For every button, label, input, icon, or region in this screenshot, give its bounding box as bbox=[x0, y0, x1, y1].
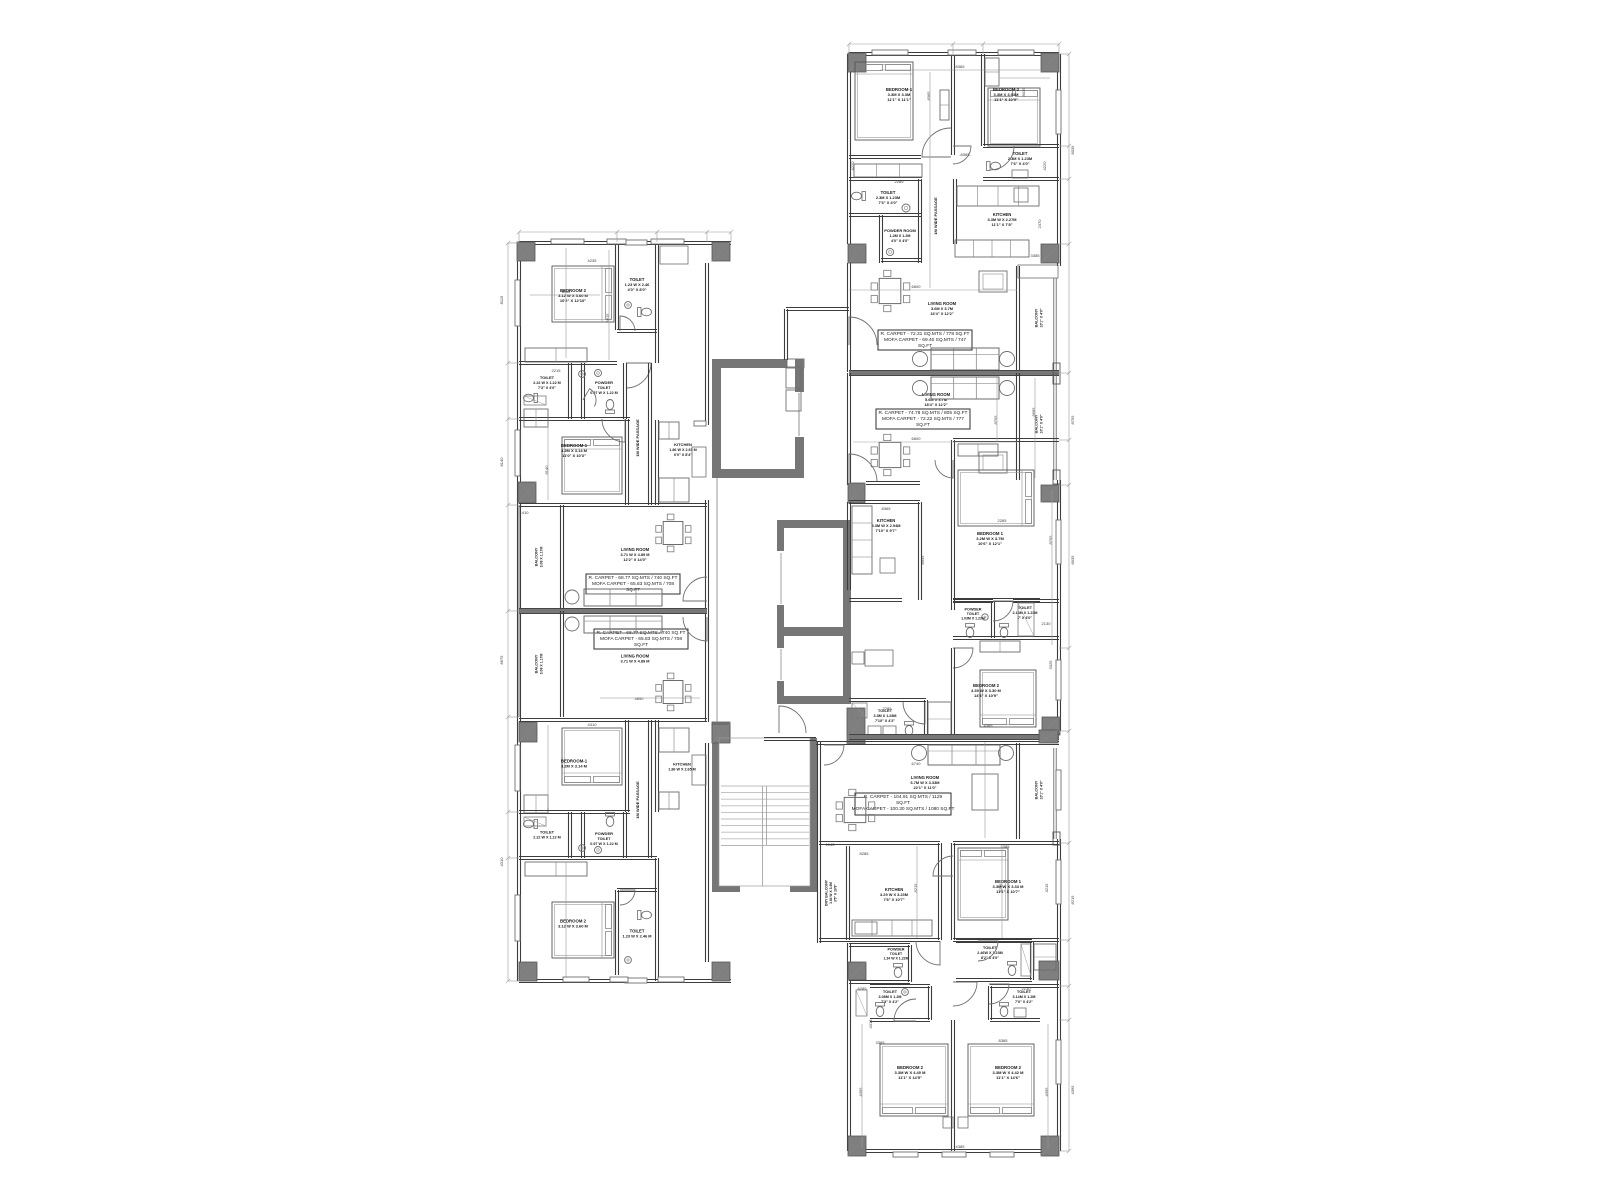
svg-text:2285: 2285 bbox=[895, 179, 905, 184]
svg-text:BEDROOM-13.2M X 3.14 M: BEDROOM-13.2M X 3.14 M bbox=[561, 758, 588, 768]
svg-text:-8365-: -8365- bbox=[959, 152, 971, 157]
svg-text:4220: 4220 bbox=[1042, 161, 1047, 171]
svg-text:8215: 8215 bbox=[1070, 895, 1075, 905]
svg-text:SQ.FT: SQ.FT bbox=[634, 642, 648, 648]
svg-text:2285: 2285 bbox=[998, 518, 1008, 523]
svg-text:3385: 3385 bbox=[1031, 253, 1041, 258]
svg-text:8935: 8935 bbox=[920, 555, 925, 565]
svg-text:R. CARPET - 72.31 SQ.MTS / 778: R. CARPET - 72.31 SQ.MTS / 778 SQ.FT bbox=[881, 331, 970, 337]
svg-text:3325: 3325 bbox=[1048, 660, 1053, 670]
svg-text:8935: 8935 bbox=[1070, 555, 1075, 565]
svg-text:BEDROOM-23.3M X 3.53M11'1" X 1: BEDROOM-23.3M X 3.53M11'1" X 10'9" bbox=[993, 87, 1020, 102]
svg-text:6600: 6600 bbox=[912, 284, 922, 289]
svg-text:BALCONY3.08 X 1.17M: BALCONY3.08 X 1.17M bbox=[535, 547, 544, 568]
svg-text:LIVING ROOM6.7M W X 3.33M22'1": LIVING ROOM6.7M W X 3.33M22'1" X 11'0" bbox=[911, 775, 940, 790]
svg-text:BEDROOM-13.3M X 3.3M11'1" X 11: BEDROOM-13.3M X 3.3M11'1" X 11'1" bbox=[886, 87, 913, 102]
svg-text:3385: 3385 bbox=[876, 1040, 886, 1045]
svg-text:BALCONY10'1" X 4'0": BALCONY10'1" X 4'0" bbox=[1035, 780, 1044, 799]
svg-text:MOFA CARPET - 65.83 SQ.MTS / 7: MOFA CARPET - 65.83 SQ.MTS / 708 bbox=[592, 581, 674, 587]
svg-text:BEDROOM 24.39 W X 3.30 M14'4": BEDROOM 24.39 W X 3.30 M14'4" X 10'9" bbox=[971, 683, 1001, 698]
svg-text:4215: 4215 bbox=[1044, 883, 1049, 893]
svg-text:4235: 4235 bbox=[588, 258, 598, 263]
svg-text:BEDROOM 13.2M W X 3.7M10'6" X: BEDROOM 13.2M W X 3.7M10'6" X 12'1" bbox=[976, 531, 1004, 546]
svg-text:4385: 4385 bbox=[984, 723, 994, 728]
svg-text:2285: 2285 bbox=[883, 706, 893, 711]
svg-text:8035: 8035 bbox=[1021, 87, 1026, 97]
svg-text:8285: 8285 bbox=[858, 986, 868, 991]
svg-text:BALCONY3.08 X 1.17M: BALCONY3.08 X 1.17M bbox=[535, 654, 544, 675]
svg-text:8115: 8115 bbox=[562, 289, 571, 294]
svg-text:8675: 8675 bbox=[499, 655, 504, 665]
svg-text:SQ.FT: SQ.FT bbox=[916, 422, 930, 428]
svg-text:2370: 2370 bbox=[1037, 219, 1042, 229]
svg-text:BEDROOM 23.3M W X 4.40 M11'1": BEDROOM 23.3M W X 4.40 M11'1" X 14'5" bbox=[895, 1065, 927, 1080]
svg-text:SQ.FT: SQ.FT bbox=[896, 800, 910, 806]
svg-text:4313: 4313 bbox=[868, 1019, 873, 1029]
svg-text:8115: 8115 bbox=[499, 295, 504, 304]
svg-text:BALCONY10'1" X 4'0": BALCONY10'1" X 4'0" bbox=[1035, 308, 1044, 327]
svg-text:8035: 8035 bbox=[1070, 145, 1075, 155]
svg-text:R. CARPET - 68.77 SQ.MTS / 740: R. CARPET - 68.77 SQ.MTS / 740 SQ.FT bbox=[589, 575, 678, 581]
svg-text:8140: 8140 bbox=[499, 457, 504, 467]
svg-text:MOFA CARPET - 72.22 SQ.MTS / 7: MOFA CARPET - 72.22 SQ.MTS / 777 bbox=[882, 416, 964, 422]
svg-text:6740: 6740 bbox=[912, 761, 922, 766]
svg-text:LIVING ROOM3.71 W X 4.89 M: LIVING ROOM3.71 W X 4.89 M bbox=[621, 654, 650, 664]
svg-text:LIVING ROOM3.6M X 3.7M16'4" X: LIVING ROOM3.6M X 3.7M16'4" X 12'2" bbox=[928, 301, 957, 316]
svg-text:R. CARPET - 74.78 SQ.MTS / 805: R. CARPET - 74.78 SQ.MTS / 805 SQ.FT bbox=[879, 410, 968, 416]
svg-text:SQ.FT: SQ.FT bbox=[918, 343, 932, 349]
svg-text:4220: 4220 bbox=[850, 161, 855, 171]
svg-text:4890: 4890 bbox=[635, 696, 645, 701]
svg-text:2130: 2130 bbox=[1022, 986, 1032, 991]
svg-text:BEDROOM-13.2M X 3.14 M11'0" X: BEDROOM-13.2M X 3.14 M11'0" X 10'3" bbox=[561, 443, 588, 458]
svg-text:LIVING ROOM3.71 W X 4.89 M12'2: LIVING ROOM3.71 W X 4.89 M12'2" X 14'0" bbox=[621, 547, 650, 562]
svg-text:1M WIDE PASSAGE: 1M WIDE PASSAGE bbox=[933, 197, 938, 235]
svg-text:1040: 1040 bbox=[826, 842, 836, 847]
svg-text:2215: 2215 bbox=[552, 368, 562, 373]
svg-text:1410: 1410 bbox=[520, 510, 530, 515]
svg-text:BEDROOM 23.12 W X 3.60 M: BEDROOM 23.12 W X 3.60 M bbox=[558, 918, 588, 928]
svg-text:8755: 8755 bbox=[1070, 415, 1075, 425]
svg-text:8365: 8365 bbox=[882, 506, 892, 511]
svg-text:4395: 4395 bbox=[1070, 1085, 1075, 1095]
svg-text:1M WIDE PASSAGE: 1M WIDE PASSAGE bbox=[635, 781, 640, 819]
svg-text:8385: 8385 bbox=[999, 1038, 1009, 1043]
svg-text:1M WIDE PASSAGE: 1M WIDE PASSAGE bbox=[635, 419, 640, 457]
svg-text:MOFA CARPET - 100.30 SQ.MTS /: MOFA CARPET - 100.30 SQ.MTS / 1080 SQ.FT bbox=[852, 806, 955, 812]
svg-text:SQ.FT: SQ.FT bbox=[626, 587, 640, 593]
svg-text:4310: 4310 bbox=[499, 857, 504, 867]
svg-text:4385: 4385 bbox=[956, 1144, 966, 1149]
svg-text:8285: 8285 bbox=[860, 851, 870, 856]
svg-text:R. CARPET - 104.91 SQ.MTS / 11: R. CARPET - 104.91 SQ.MTS / 1129 bbox=[864, 794, 943, 800]
svg-text:8365: 8365 bbox=[956, 64, 966, 69]
svg-text:2130: 2130 bbox=[1042, 621, 1052, 626]
svg-text:BEDROOM 23.3M W X 4.42 M11'1": BEDROOM 23.3M W X 4.42 M11'1" X 14'6" bbox=[993, 1065, 1025, 1080]
svg-text:MOFA CARPET - 69.40 SQ.MTS / 7: MOFA CARPET - 69.40 SQ.MTS / 747 bbox=[884, 337, 966, 343]
svg-text:4310: 4310 bbox=[588, 722, 598, 727]
svg-text:MOFA CARPET - 65.83 SQ.MTS / 7: MOFA CARPET - 65.83 SQ.MTS / 708 bbox=[600, 636, 682, 642]
svg-text:6600: 6600 bbox=[912, 436, 922, 441]
